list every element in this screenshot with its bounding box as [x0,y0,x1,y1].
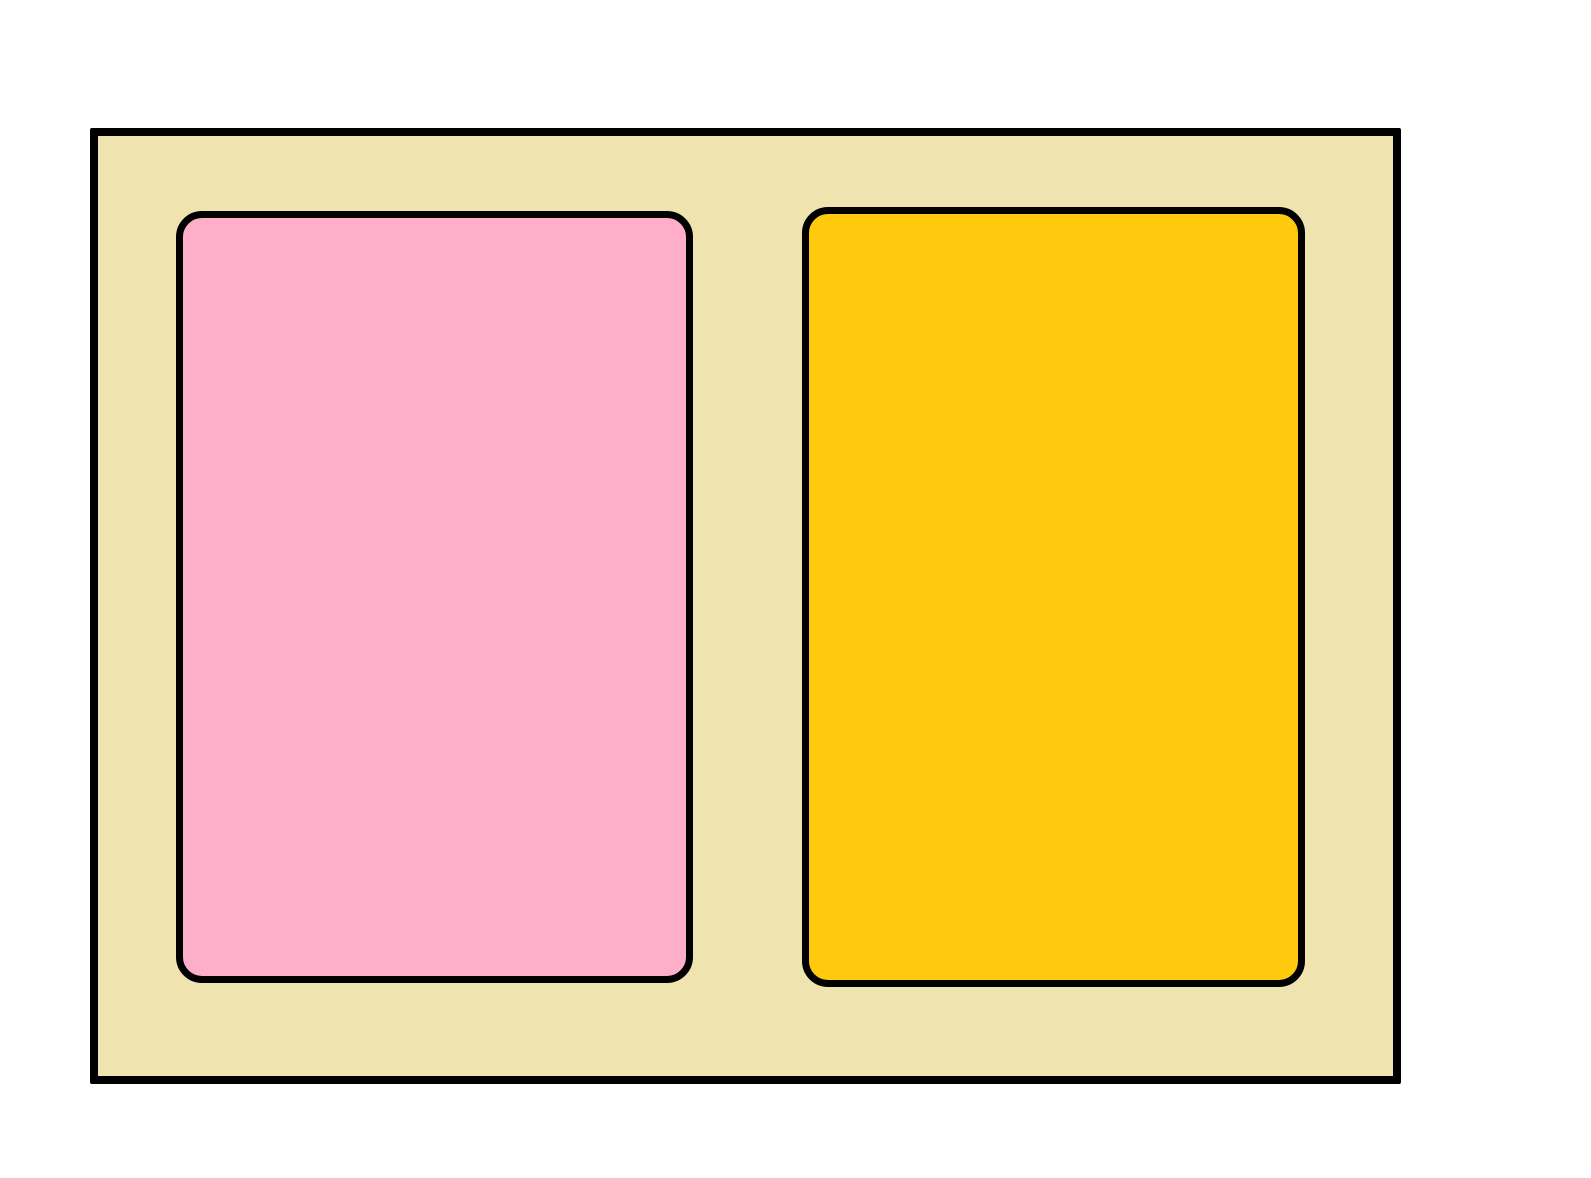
pink-panel [176,211,693,983]
gold-panel [802,207,1305,987]
drawing-canvas [0,0,1591,1178]
